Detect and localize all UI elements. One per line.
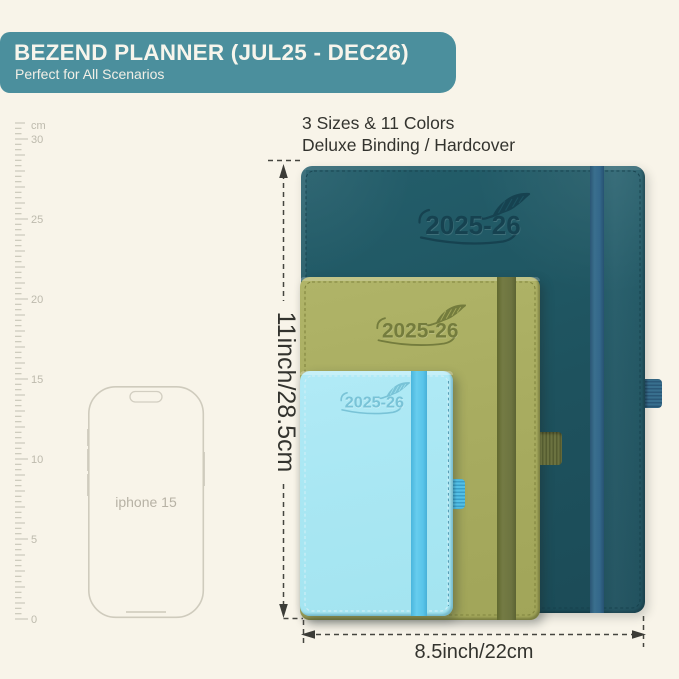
svg-text:11inch/28.5cm: 11inch/28.5cm xyxy=(272,312,300,473)
svg-text:8.5inch/22cm: 8.5inch/22cm xyxy=(415,641,534,663)
